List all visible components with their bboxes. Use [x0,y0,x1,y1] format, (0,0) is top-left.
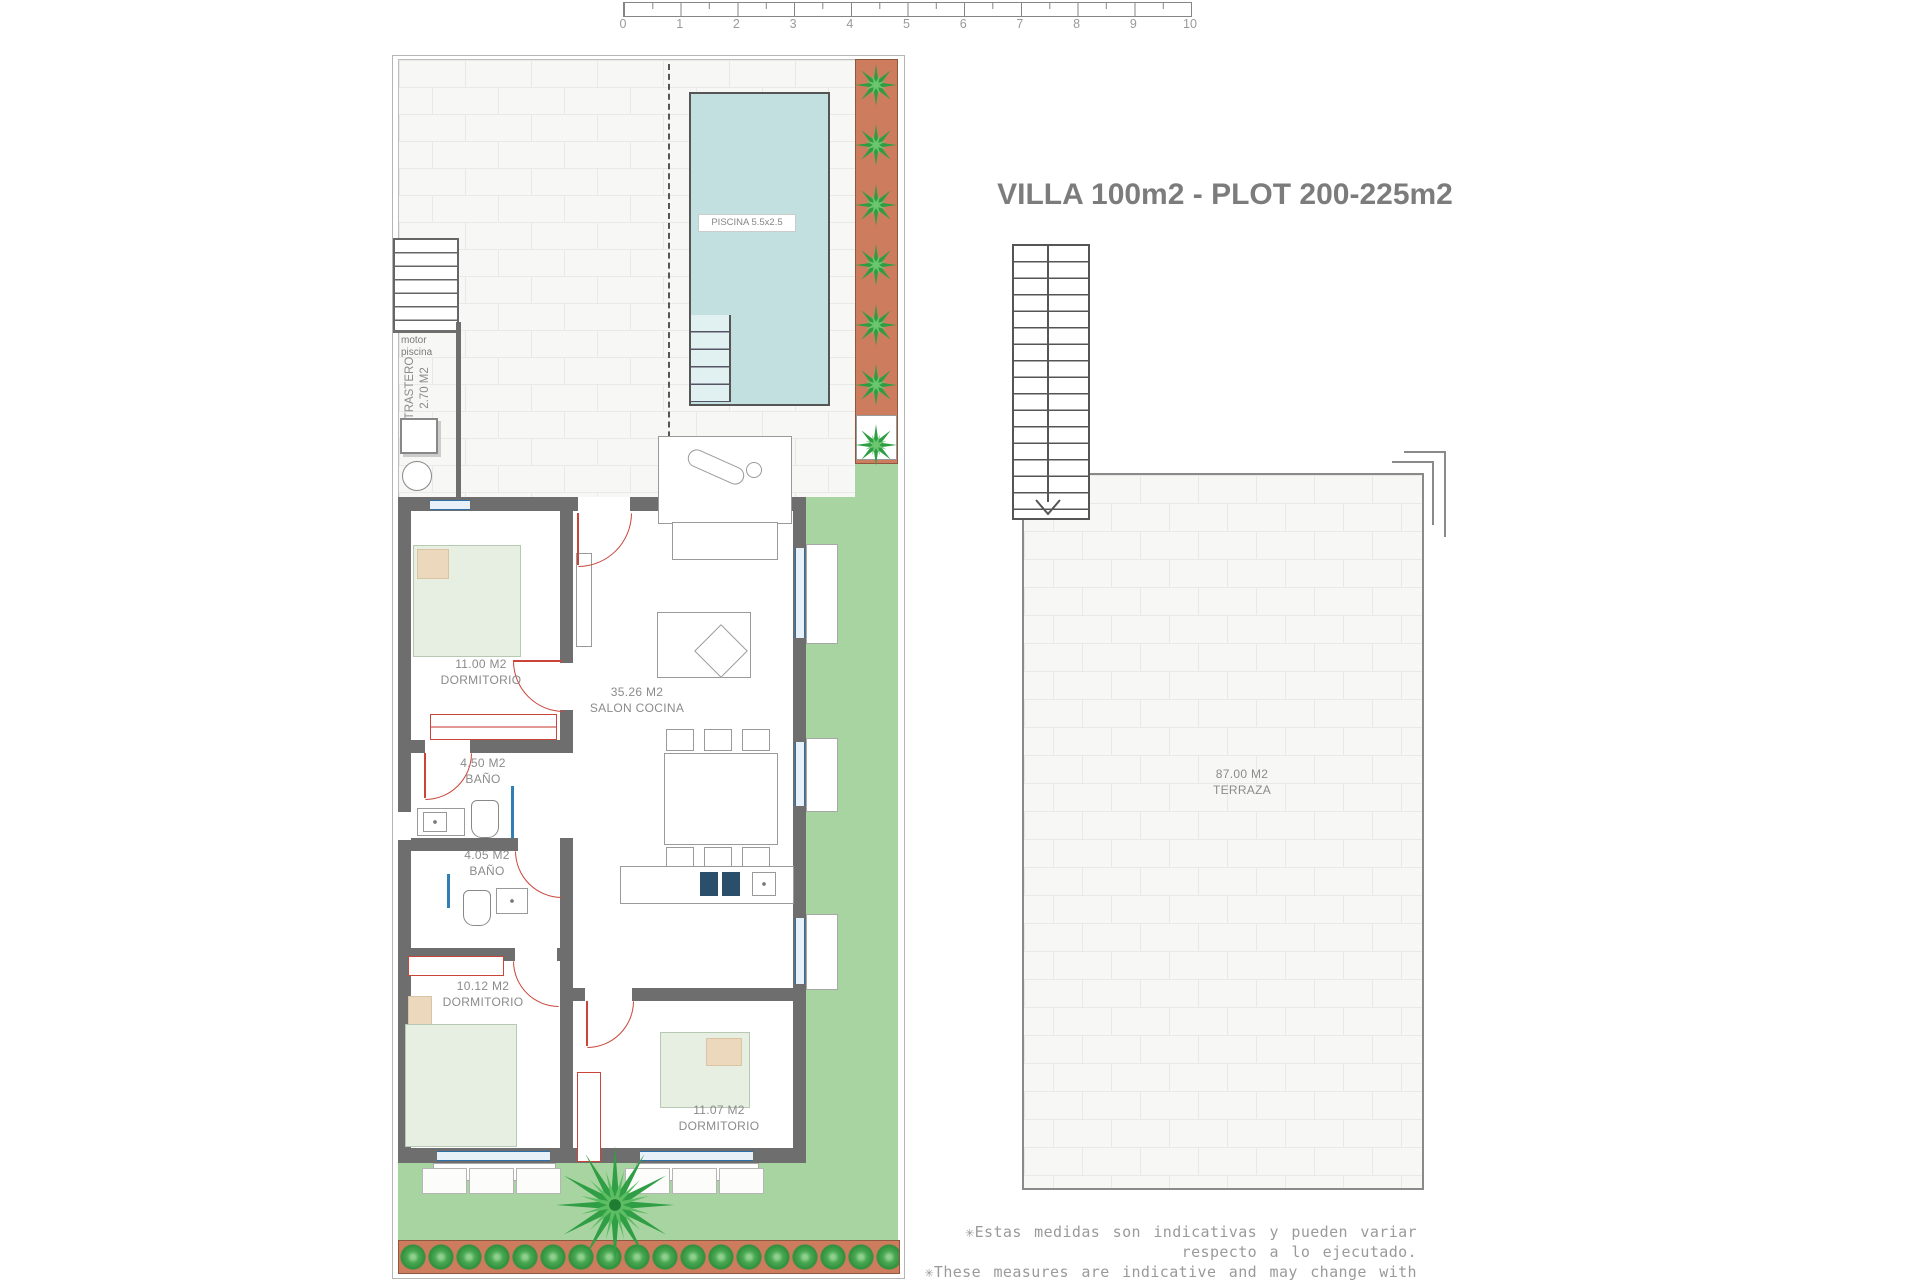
kitchen-sink [700,872,718,896]
bed-bedroom2 [405,1024,517,1147]
pool-steps [691,315,731,402]
pool-filter-circle [402,461,432,491]
scale-tick-label: 10 [1183,17,1197,31]
wall-bed1-bath1-b [470,740,573,753]
pillow-bedroom3 [706,1038,742,1066]
plant-icon [855,304,896,345]
entry-door-leaf [577,513,579,565]
room-label-bedroom3: 11.07 M2 DORMITORIO [654,1102,784,1134]
pool-label: PISCINA 5.5x2.5 [698,214,796,232]
wall-bed3-top-a [573,988,585,1001]
bath1-sink [423,812,447,832]
person-head [746,462,762,478]
window-bed1-top [430,500,470,510]
wall-bath1-bath2-b [560,838,573,851]
scale-tick-label: 2 [733,17,740,31]
planter-plants [843,50,909,480]
scale-bar-numbers: 0 1 2 3 4 5 6 7 8 9 10 [623,17,1190,31]
room-area: 4.50 M2 [418,755,548,771]
wall-bed3-top-b [632,988,793,1001]
sideboard [576,553,592,647]
pool-motor-unit [400,418,438,454]
terrace-stairs [1012,244,1090,520]
scale-tick-label: 7 [1016,17,1023,31]
window-salon-right-3 [795,918,805,984]
room-label-bedroom1: 11.00 M2 DORMITORIO [416,656,546,688]
stepping-stone [672,1168,717,1194]
bedroom3-door-leaf [586,1001,588,1046]
wall-bed1-salon [560,511,573,663]
stepping-stone [422,1168,467,1194]
stairs-direction-arrow [1034,498,1062,518]
scale-tick-label: 9 [1130,17,1137,31]
exterior-stairs [393,238,459,333]
room-label-bedroom2: 10.12 M2 DORMITORIO [418,978,548,1010]
room-name: BAÑO [418,771,548,787]
scale-tick-label: 0 [620,17,627,31]
wall-bed2-right [560,961,573,1148]
scale-tick-label: 3 [790,17,797,31]
wardrobe-bedroom1 [430,714,557,740]
window-sill-right-3 [806,914,838,990]
scale-tick-label: 4 [846,17,853,31]
wall-bath2-bed2-b [557,948,573,961]
plant-icon [855,184,896,225]
scale-tick-label: 6 [960,17,967,31]
bath1-shower-screen [511,786,514,838]
window-bed2-bottom [437,1151,550,1161]
disclaimer-line-en: ✳These measures are indicative and may c… [915,1262,1417,1280]
stepping-stone [469,1168,514,1194]
storage-wall [456,322,461,497]
plant-icon [855,64,896,105]
plant-icon [855,364,896,405]
terrace-stairs-divider [1047,246,1049,502]
kitchen-sink [722,872,740,896]
room-area: 35.26 M2 [572,684,702,700]
plant-icon [855,424,896,465]
room-area: 4.05 M2 [422,847,552,863]
pillow-bedroom1 [417,549,449,579]
scale-tick-label: 1 [676,17,683,31]
wall-bed1-bath1-a [411,740,425,753]
window-salon-right-2 [795,742,805,806]
bath1-toilet [471,800,499,838]
room-area: 11.07 M2 [654,1102,784,1118]
room-area: 87.00 M2 [1177,766,1307,782]
room-name: BAÑO [422,863,552,879]
terrace-parapet-corner-2 [1404,451,1446,537]
dining-chair [704,729,732,751]
disclaimer-line-es: ✳Estas medidas son indicativas y pueden … [915,1222,1417,1262]
bath2-toilet [463,890,491,926]
room-name: DORMITORIO [654,1118,784,1134]
plan-title: VILLA 100m2 - PLOT 200-225m2 [990,178,1460,212]
room-area: 11.00 M2 [416,656,546,672]
room-name: TERRAZA [1177,782,1307,798]
window-sill-right-1 [806,544,838,644]
scale-tick-label: 8 [1073,17,1080,31]
wardrobe-bedroom2 [408,956,504,976]
terrace-plan [1022,473,1424,1190]
window-salon-right-1 [795,548,805,638]
room-label-salon: 35.26 M2 SALON COCINA [572,684,702,716]
bath1-wall-gap [398,812,411,840]
room-name: SALON COCINA [572,700,702,716]
room-area: 10.12 M2 [418,978,548,994]
stepping-stone [516,1168,561,1194]
terrace-label: 87.00 M2 TERRAZA [1177,766,1307,798]
dining-chair [666,729,694,751]
entry-door-gap [578,497,630,511]
bath2-sink [496,888,528,914]
dining-table [664,753,778,845]
patio-dashed-divider [668,64,670,497]
kitchen-hob [752,872,776,896]
plant-icon [855,244,896,285]
window-sill-right-2 [806,738,838,812]
scale-tick-label: 5 [903,17,910,31]
dining-chair [742,729,770,751]
room-label-bath2: 4.05 M2 BAÑO [422,847,552,879]
scale-bar [623,2,1192,17]
plant-icon [855,124,896,165]
disclaimer: ✳Estas medidas son indicativas y pueden … [915,1222,1417,1280]
room-label-bath1: 4.50 M2 BAÑO [418,755,548,787]
palm-tree-icon [556,1146,674,1264]
room-name: DORMITORIO [418,994,548,1010]
bath2-shower-screen [447,874,450,908]
stepping-stone [719,1168,764,1194]
floor-plan-canvas: 0 1 2 3 4 5 6 7 8 9 10 VILLA 100m2 - PLO… [0,0,1920,1280]
sofa-seat [672,522,778,560]
room-name: DORMITORIO [416,672,546,688]
